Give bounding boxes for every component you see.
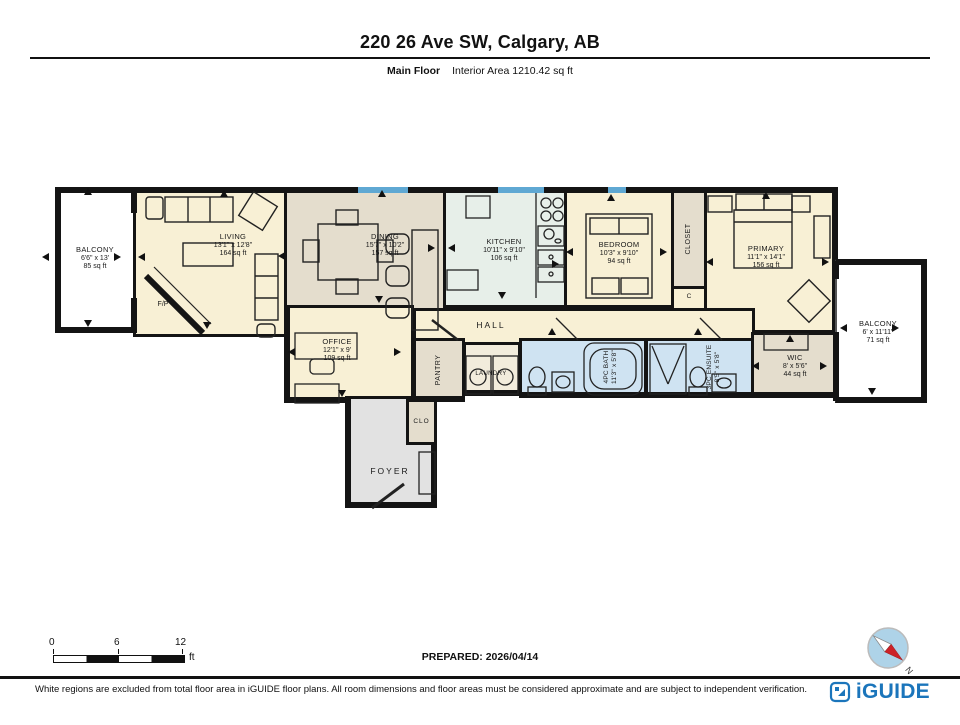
label-balcony-left: BALCONY 6'6" x 13' 85 sq ft bbox=[60, 246, 130, 271]
label-closet: CLOSET bbox=[685, 223, 693, 254]
room-ensuite bbox=[645, 338, 755, 398]
wall-stub bbox=[833, 261, 839, 279]
label-fireplace: F/P bbox=[146, 301, 180, 309]
floor-plan-page: 220 26 Ave SW, Calgary, AB Main FloorInt… bbox=[0, 0, 960, 725]
footer-divider bbox=[0, 676, 960, 679]
label-kitchen: KITCHEN 10'11" x 9'10" 106 sq ft bbox=[469, 238, 539, 263]
opening-arrow bbox=[786, 335, 794, 342]
window bbox=[608, 187, 626, 193]
interior-area-label: Interior Area 1210.42 sq ft bbox=[452, 65, 573, 77]
floor-label: Main Floor bbox=[387, 65, 440, 77]
opening-arrow bbox=[762, 192, 770, 199]
opening-arrow bbox=[428, 244, 435, 252]
opening-arrow bbox=[84, 188, 92, 195]
iguide-logo-text: iGUIDE bbox=[856, 680, 930, 704]
opening-arrow bbox=[220, 190, 228, 197]
opening-arrow bbox=[42, 253, 49, 261]
page-title: 220 26 Ave SW, Calgary, AB bbox=[0, 32, 960, 53]
wall-stub bbox=[833, 382, 839, 401]
floor-subtitle: Main FloorInterior Area 1210.42 sq ft bbox=[0, 65, 960, 77]
label-balcony-right: BALCONY 6' x 11'11" 71 sq ft bbox=[843, 320, 913, 345]
opening-arrow bbox=[378, 190, 386, 197]
room-laundry bbox=[463, 342, 521, 396]
label-wic: WIC 8' x 5'6" 44 sq ft bbox=[760, 354, 830, 379]
opening-arrow bbox=[694, 328, 702, 335]
disclaimer-text: White regions are excluded from total fl… bbox=[35, 684, 807, 695]
opening-arrow bbox=[752, 362, 759, 370]
label-bedroom: BEDROOM 10'3" x 9'10" 94 sq ft bbox=[584, 241, 654, 266]
opening-arrow bbox=[138, 253, 145, 261]
label-primary: PRIMARY 11'1" x 14'1" 156 sq ft bbox=[731, 245, 801, 270]
opening-arrow bbox=[548, 328, 556, 335]
label-foyer: FOYER bbox=[350, 467, 430, 477]
opening-arrow bbox=[868, 388, 876, 395]
opening-arrow bbox=[566, 248, 573, 256]
opening-arrow bbox=[552, 260, 559, 268]
opening-arrow bbox=[498, 292, 506, 299]
label-pantry: PANTRY bbox=[435, 355, 443, 386]
label-bath: 4PC BATH 11'3" x 5'8" bbox=[603, 350, 619, 384]
wall-stub bbox=[131, 298, 137, 333]
opening-arrow bbox=[822, 258, 829, 266]
room-living bbox=[133, 187, 287, 337]
scale-tick-label: 0 bbox=[49, 637, 55, 648]
opening-arrow bbox=[448, 244, 455, 252]
iguide-logo-icon bbox=[829, 681, 851, 703]
window bbox=[498, 187, 544, 193]
label-closet-c: C bbox=[671, 293, 707, 300]
scale-tick-label: 6 bbox=[114, 637, 120, 648]
opening-arrow bbox=[394, 348, 401, 356]
prepared-date: PREPARED: 2026/04/14 bbox=[0, 651, 960, 663]
label-clo: CLO bbox=[406, 418, 437, 425]
label-living: LIVING 13'1" x 12'8" 164 sq ft bbox=[198, 233, 268, 258]
label-laundry: LAUNDRY bbox=[461, 371, 521, 378]
room-bath bbox=[519, 338, 647, 398]
label-ensuite: 3PC ENSUITE 8'5" x 5'8" bbox=[706, 345, 722, 390]
compass-north-label: N bbox=[903, 665, 915, 676]
opening-arrow bbox=[288, 348, 295, 356]
opening-arrow bbox=[278, 252, 285, 260]
compass-icon: N bbox=[860, 624, 920, 680]
label-hall: HALL bbox=[455, 321, 527, 331]
header-divider bbox=[30, 57, 930, 59]
opening-arrow bbox=[338, 390, 346, 397]
wall-stub bbox=[131, 189, 137, 213]
opening-arrow bbox=[375, 296, 383, 303]
scale-tick-label: 12 bbox=[175, 637, 186, 648]
opening-arrow bbox=[84, 320, 92, 327]
label-dining: DINING 15'7" x 10'2" 157 sq ft bbox=[350, 233, 420, 258]
opening-arrow bbox=[660, 248, 667, 256]
opening-arrow bbox=[607, 194, 615, 201]
opening-arrow bbox=[706, 258, 713, 266]
label-office: OFFICE 12'1" x 9' 109 sq ft bbox=[302, 338, 372, 363]
opening-arrow bbox=[203, 322, 211, 329]
iguide-logo: iGUIDE bbox=[829, 680, 930, 704]
